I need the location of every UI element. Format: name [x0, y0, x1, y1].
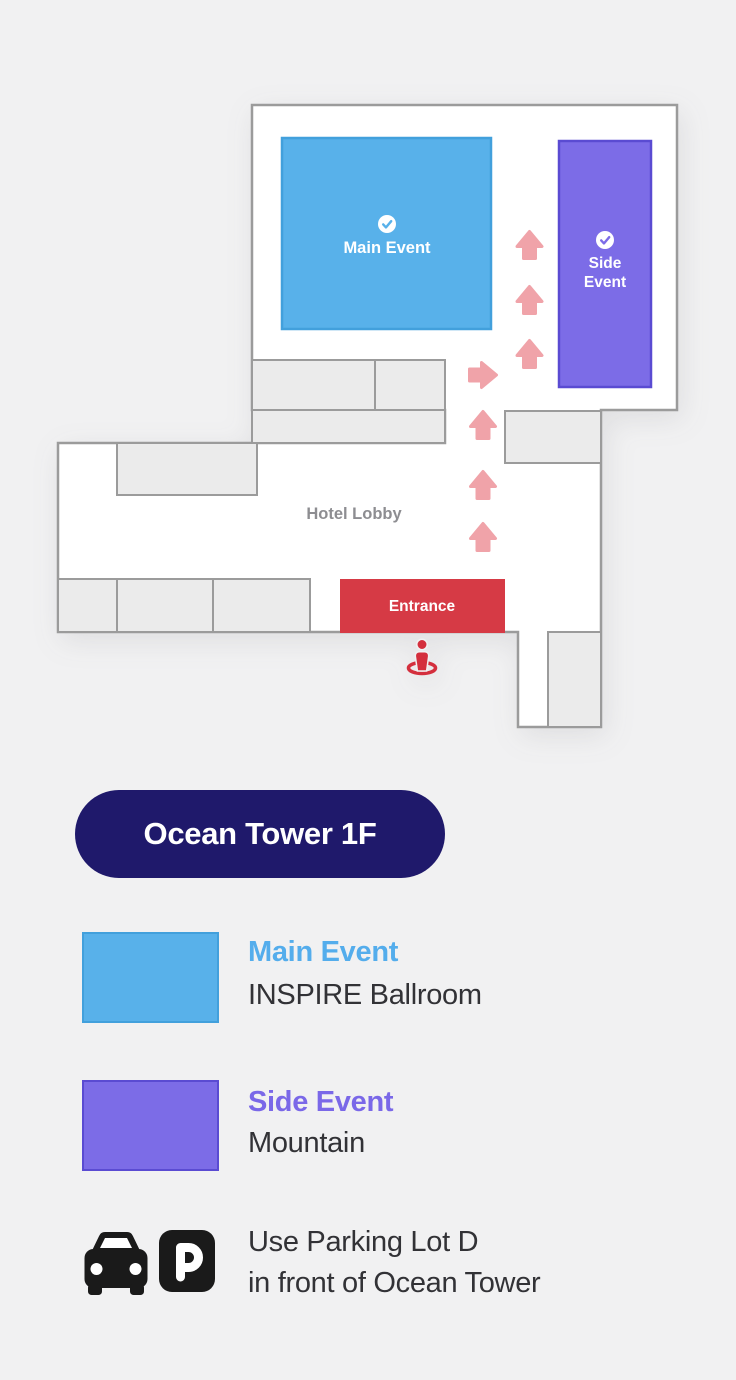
legend-title-side-event: Side Event: [248, 1085, 393, 1120]
utility-room: [505, 411, 601, 463]
utility-room: [58, 579, 117, 632]
hotel-lobby-label: Hotel Lobby: [306, 505, 402, 523]
parking-note-line1: Use Parking Lot D: [248, 1222, 540, 1263]
legend-subtitle-side-event: Mountain: [248, 1126, 365, 1161]
utility-room: [252, 360, 375, 410]
main-event-label: Main Event: [343, 239, 431, 257]
entrance-label: Entrance: [389, 598, 456, 615]
side-event-label-line2: Event: [584, 274, 626, 291]
venue-map-screen: Main Event Side Event Hotel Lobby Entran…: [0, 0, 736, 1380]
building-floor-badge: Ocean Tower 1F: [75, 790, 445, 878]
main-event-check-icon: [378, 215, 396, 233]
side-event-check-icon: [596, 231, 614, 249]
parking-note: Use Parking Lot D in front of Ocean Towe…: [248, 1222, 540, 1304]
parking-icons: [83, 1229, 217, 1297]
main-event-room: [282, 138, 491, 329]
car-icon: [85, 1234, 148, 1296]
utility-room: [375, 360, 445, 410]
utility-room: [252, 410, 445, 443]
utility-room: [213, 579, 310, 632]
parking-note-line2: in front of Ocean Tower: [248, 1263, 540, 1304]
utility-room: [117, 579, 213, 632]
floor-plan-map: Main Event Side Event Hotel Lobby Entran…: [0, 0, 736, 760]
legend-subtitle-main-event: INSPIRE Ballroom: [248, 978, 482, 1013]
parking-sign-icon: [159, 1230, 215, 1292]
utility-room: [548, 632, 601, 727]
utility-room: [117, 443, 257, 495]
legend-swatch-side-event: [82, 1080, 219, 1171]
current-location-icon: [409, 639, 436, 673]
legend-title-main-event: Main Event: [248, 935, 398, 970]
legend-swatch-main-event: [82, 932, 219, 1023]
building-floor-badge-label: Ocean Tower 1F: [144, 816, 377, 852]
side-event-label-line1: Side: [589, 255, 622, 272]
